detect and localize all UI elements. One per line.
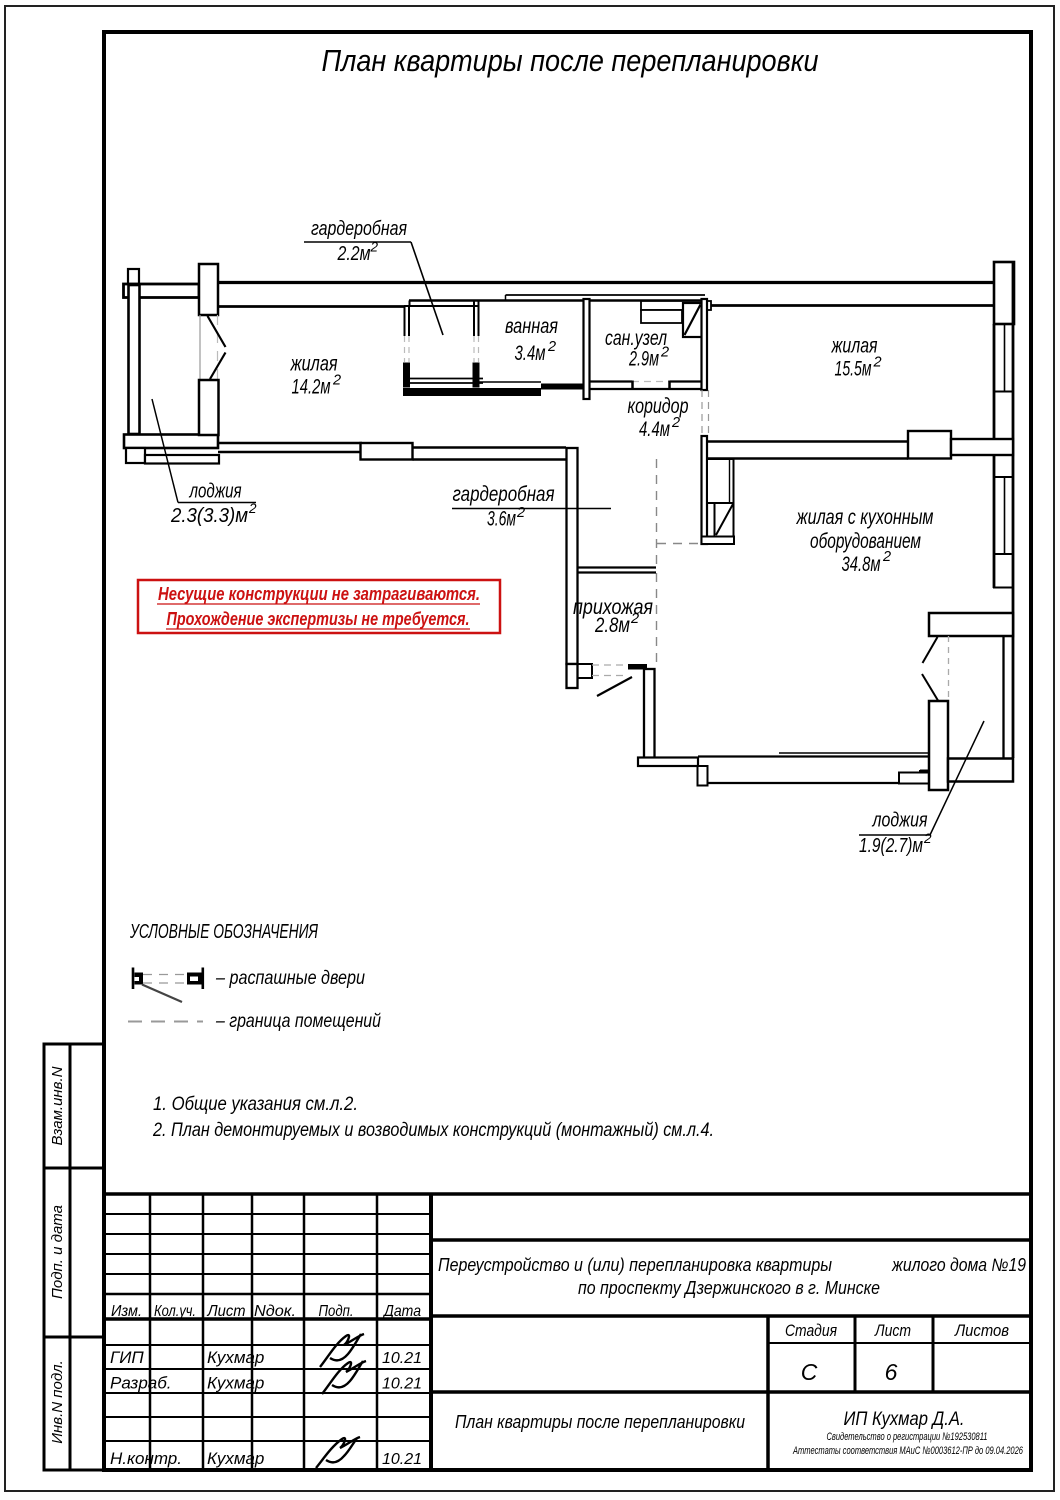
svg-text:2: 2 xyxy=(248,501,257,516)
svg-text:10.21: 10.21 xyxy=(382,1376,422,1393)
svg-text:6: 6 xyxy=(885,1359,898,1385)
svg-text:План квартиры после перепланир: План квартиры после перепланировки xyxy=(322,43,819,78)
svg-text:Взам.инв.N: Взам.инв.N xyxy=(49,1066,66,1145)
svg-text:гардеробная: гардеробная xyxy=(311,218,407,240)
svg-text:1. Общие указания см.л.2.: 1. Общие указания см.л.2. xyxy=(153,1094,358,1115)
svg-text:План квартиры после перепланир: План квартиры после перепланировки xyxy=(455,1412,745,1432)
svg-text:Изм.: Изм. xyxy=(111,1303,142,1320)
svg-text:Подп.: Подп. xyxy=(319,1303,354,1320)
svg-text:4.4м: 4.4м xyxy=(639,417,670,441)
svg-text:Дата: Дата xyxy=(382,1303,421,1320)
svg-text:Аттестаты соответствия МАиС №0: Аттестаты соответствия МАиС №0003612-ПР … xyxy=(792,1445,1023,1457)
svg-text:– распашные двери: – распашные двери xyxy=(215,968,365,989)
svg-text:14.2м: 14.2м xyxy=(292,375,331,399)
svg-text:3.4м: 3.4м xyxy=(515,341,546,365)
svg-text:ванная: ванная xyxy=(505,314,558,338)
svg-text:Прохождение экспертизы не треб: Прохождение экспертизы не требуется. xyxy=(167,609,470,629)
svg-text:1.9(2.7)м: 1.9(2.7)м xyxy=(859,835,923,857)
svg-text:Листов: Листов xyxy=(954,1321,1009,1340)
svg-text:2: 2 xyxy=(882,549,891,565)
svg-text:гардеробная: гардеробная xyxy=(453,482,555,506)
svg-text:2. План демонтируемых и возво: 2. План демонтируемых и возводимых конст… xyxy=(152,1120,714,1141)
svg-text:10.21: 10.21 xyxy=(382,1350,422,1367)
svg-text:Стадия: Стадия xyxy=(785,1321,837,1340)
svg-text:Кол.уч.: Кол.уч. xyxy=(154,1303,196,1320)
svg-text:жилая с кухонным: жилая с кухонным xyxy=(796,505,934,529)
svg-text:жилого дома №19: жилого дома №19 xyxy=(891,1255,1026,1275)
svg-text:2: 2 xyxy=(370,240,379,255)
svg-text:Подп. и дата: Подп. и дата xyxy=(49,1205,66,1299)
svg-text:34.8м: 34.8м xyxy=(842,552,881,576)
svg-text:Nдок.: Nдок. xyxy=(254,1303,296,1320)
svg-text:Инв.N подл.: Инв.N подл. xyxy=(49,1360,66,1444)
svg-text:2: 2 xyxy=(547,339,556,355)
svg-text:Переустройство и (или) перепла: Переустройство и (или) перепланировка кв… xyxy=(438,1255,832,1275)
svg-text:2: 2 xyxy=(873,355,882,371)
svg-text:жилая: жилая xyxy=(831,334,878,358)
svg-text:Кухмар: Кухмар xyxy=(207,1449,264,1468)
svg-text:– граница помещений: – граница помещений xyxy=(215,1011,381,1032)
svg-text:Лист: Лист xyxy=(207,1303,246,1320)
svg-text:оборудованием: оборудованием xyxy=(810,529,921,553)
svg-text:15.5м: 15.5м xyxy=(835,357,872,381)
svg-text:С: С xyxy=(801,1359,818,1385)
svg-text:3.6м: 3.6м xyxy=(487,507,516,531)
svg-text:по проспекту Дзержинского в г.: по проспекту Дзержинского в г. Минске xyxy=(578,1278,880,1298)
svg-text:ИП Кухмар Д.А.: ИП Кухмар Д.А. xyxy=(844,1409,965,1430)
svg-text:Лист: Лист xyxy=(874,1321,911,1340)
svg-text:лоджия: лоджия xyxy=(189,481,242,503)
svg-text:Несущие конструкции не затраги: Несущие конструкции не затрагиваются. xyxy=(158,584,480,604)
svg-text:Разраб.: Разраб. xyxy=(110,1374,172,1393)
svg-text:Кухмар: Кухмар xyxy=(207,1374,264,1393)
svg-text:жилая: жилая xyxy=(290,352,338,376)
svg-text:Н.контр.: Н.контр. xyxy=(110,1449,182,1468)
svg-text:Кухмар: Кухмар xyxy=(207,1348,264,1367)
svg-text:ГИП: ГИП xyxy=(110,1348,144,1367)
svg-text:лоджия: лоджия xyxy=(872,810,928,832)
svg-text:2.3(3.3)м: 2.3(3.3)м xyxy=(170,505,248,527)
svg-text:2: 2 xyxy=(332,373,341,389)
svg-text:2: 2 xyxy=(671,415,680,431)
svg-text:Свидетельство о регистрации №1: Свидетельство о регистрации №192530811 xyxy=(827,1431,988,1443)
svg-text:УСЛОВНЫЕ ОБОЗНАЧЕНИЯ: УСЛОВНЫЕ ОБОЗНАЧЕНИЯ xyxy=(129,921,318,943)
svg-text:2.2м: 2.2м xyxy=(337,243,371,265)
svg-text:2.9м: 2.9м xyxy=(628,347,659,371)
svg-text:2: 2 xyxy=(516,505,525,521)
svg-text:2: 2 xyxy=(630,611,639,627)
svg-text:2: 2 xyxy=(660,345,669,361)
svg-text:10.21: 10.21 xyxy=(382,1451,422,1468)
svg-text:2.8м: 2.8м xyxy=(594,613,630,637)
